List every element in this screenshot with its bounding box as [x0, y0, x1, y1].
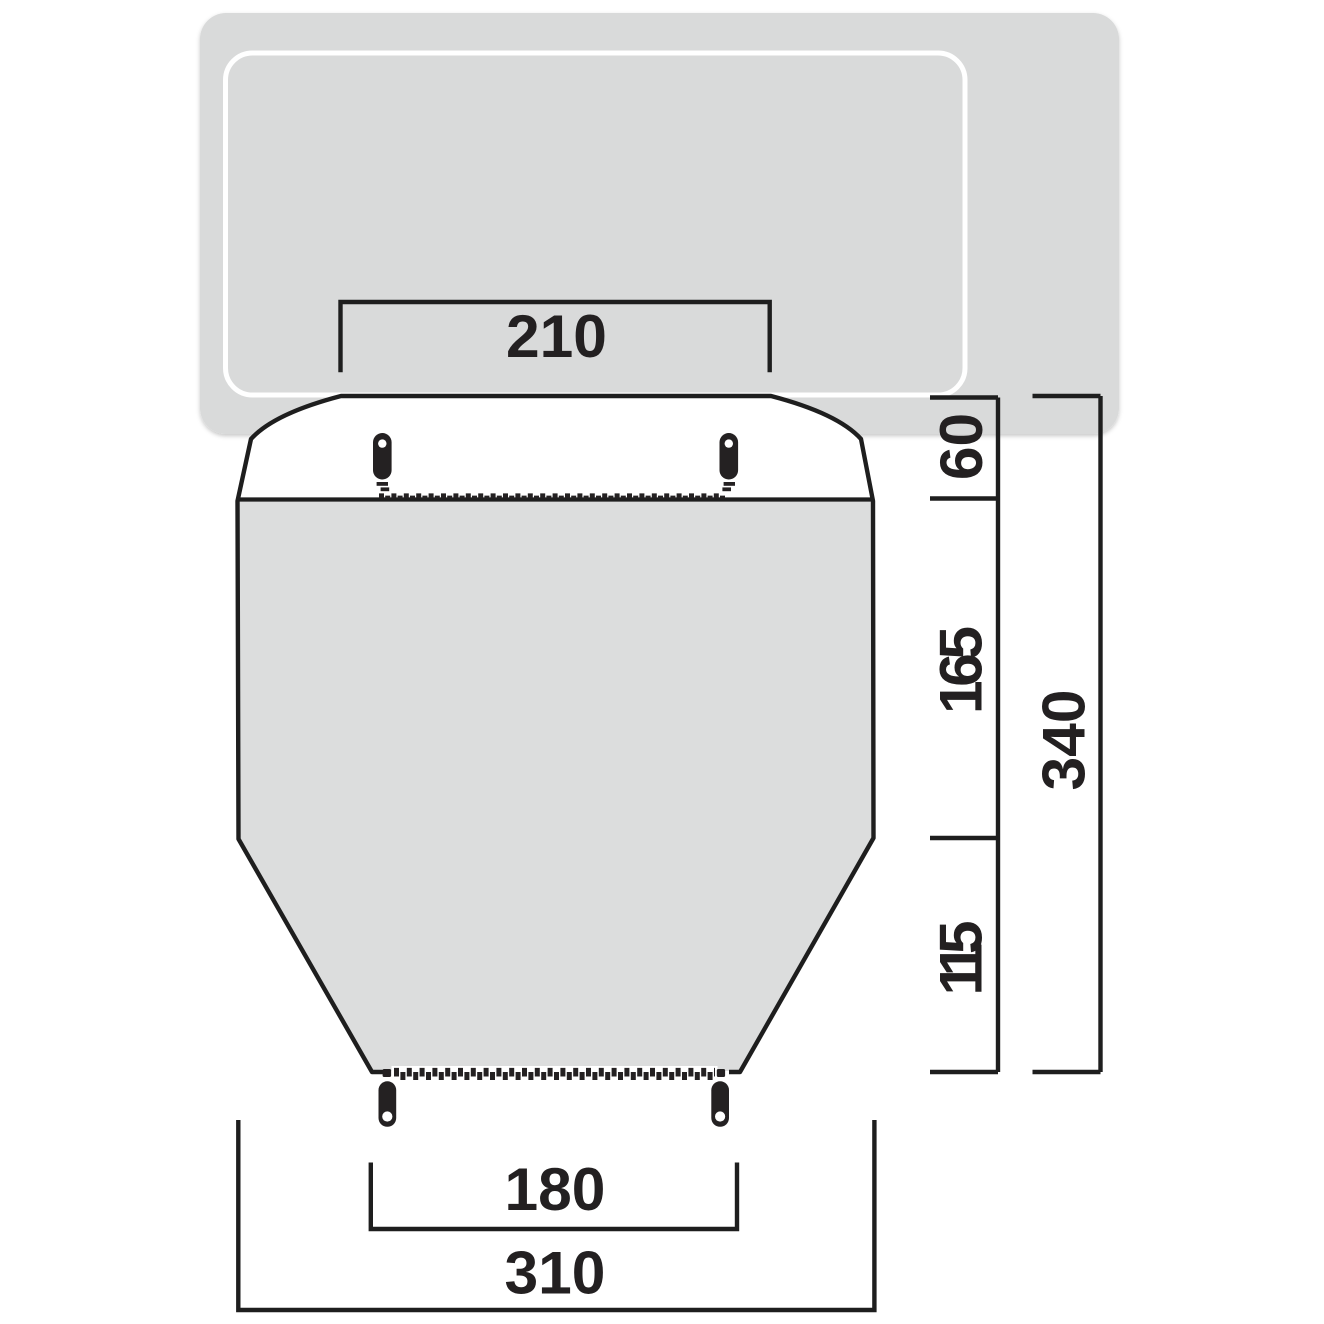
- svg-text:210: 210: [506, 302, 607, 370]
- svg-text:340: 340: [1030, 690, 1098, 791]
- svg-text:165: 165: [927, 626, 995, 714]
- svg-text:310: 310: [505, 1239, 606, 1307]
- svg-text:60: 60: [927, 413, 995, 480]
- svg-text:115: 115: [927, 921, 995, 996]
- svg-text:180: 180: [505, 1155, 606, 1223]
